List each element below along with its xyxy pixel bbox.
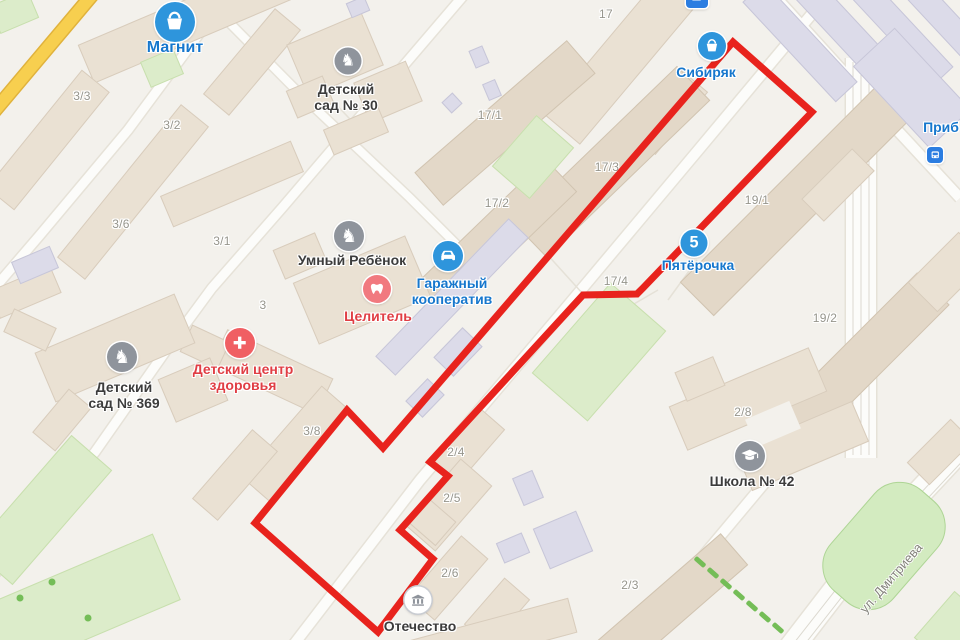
prib-label[interactable]: Приб	[923, 119, 959, 135]
tselitel-tooth-icon[interactable]	[363, 275, 391, 303]
sibiryak-basket-icon[interactable]	[698, 32, 726, 60]
sibiryak-label[interactable]: Сибиряк	[676, 64, 736, 80]
detsky-sad-369-kindergarten-icon[interactable]: ♞	[107, 342, 137, 372]
detsky-sad-30-label[interactable]: Детский сад № 30	[314, 81, 378, 113]
transit-stop-right-bus-icon[interactable]	[927, 147, 943, 163]
tselitel-label[interactable]: Целитель	[344, 308, 412, 324]
pyaterochka-label[interactable]: Пятёрочка	[662, 257, 735, 273]
transit-stop-top-bus-icon[interactable]	[686, 0, 708, 8]
otechestvo-label[interactable]: Отечество	[384, 618, 457, 634]
shkola-42-school-icon[interactable]	[735, 441, 765, 471]
otechestvo-museum-icon[interactable]	[405, 587, 432, 614]
umny-rebenok-kindergarten-icon[interactable]: ♞	[334, 221, 364, 251]
magnit-label[interactable]: Магнит	[147, 39, 203, 57]
umny-rebenok-label[interactable]: Умный Ребёнок	[298, 252, 406, 268]
detsky-centr-zdorovya-label[interactable]: Детский центр здоровья	[193, 361, 294, 393]
shkola-42-label[interactable]: Школа № 42	[710, 473, 795, 489]
magnit-basket-icon[interactable]	[155, 2, 195, 42]
map-canvas[interactable]: 173/33/217/13/63/117/217/319/117/419/232…	[0, 0, 960, 640]
garazhny-kooperativ-label[interactable]: Гаражный кооператив	[412, 275, 493, 307]
detsky-sad-369-label[interactable]: Детский сад № 369	[88, 379, 159, 411]
pyaterochka-five-icon[interactable]: 5	[681, 230, 708, 257]
detsky-centr-zdorovya-medical-cross-icon[interactable]	[225, 328, 255, 358]
detsky-sad-30-kindergarten-icon[interactable]: ♞	[335, 48, 362, 75]
garazhny-kooperativ-car-icon[interactable]	[433, 241, 463, 271]
poi-layer: Магнит♞Детский сад № 30СибирякПриб♞Умный…	[0, 0, 960, 640]
